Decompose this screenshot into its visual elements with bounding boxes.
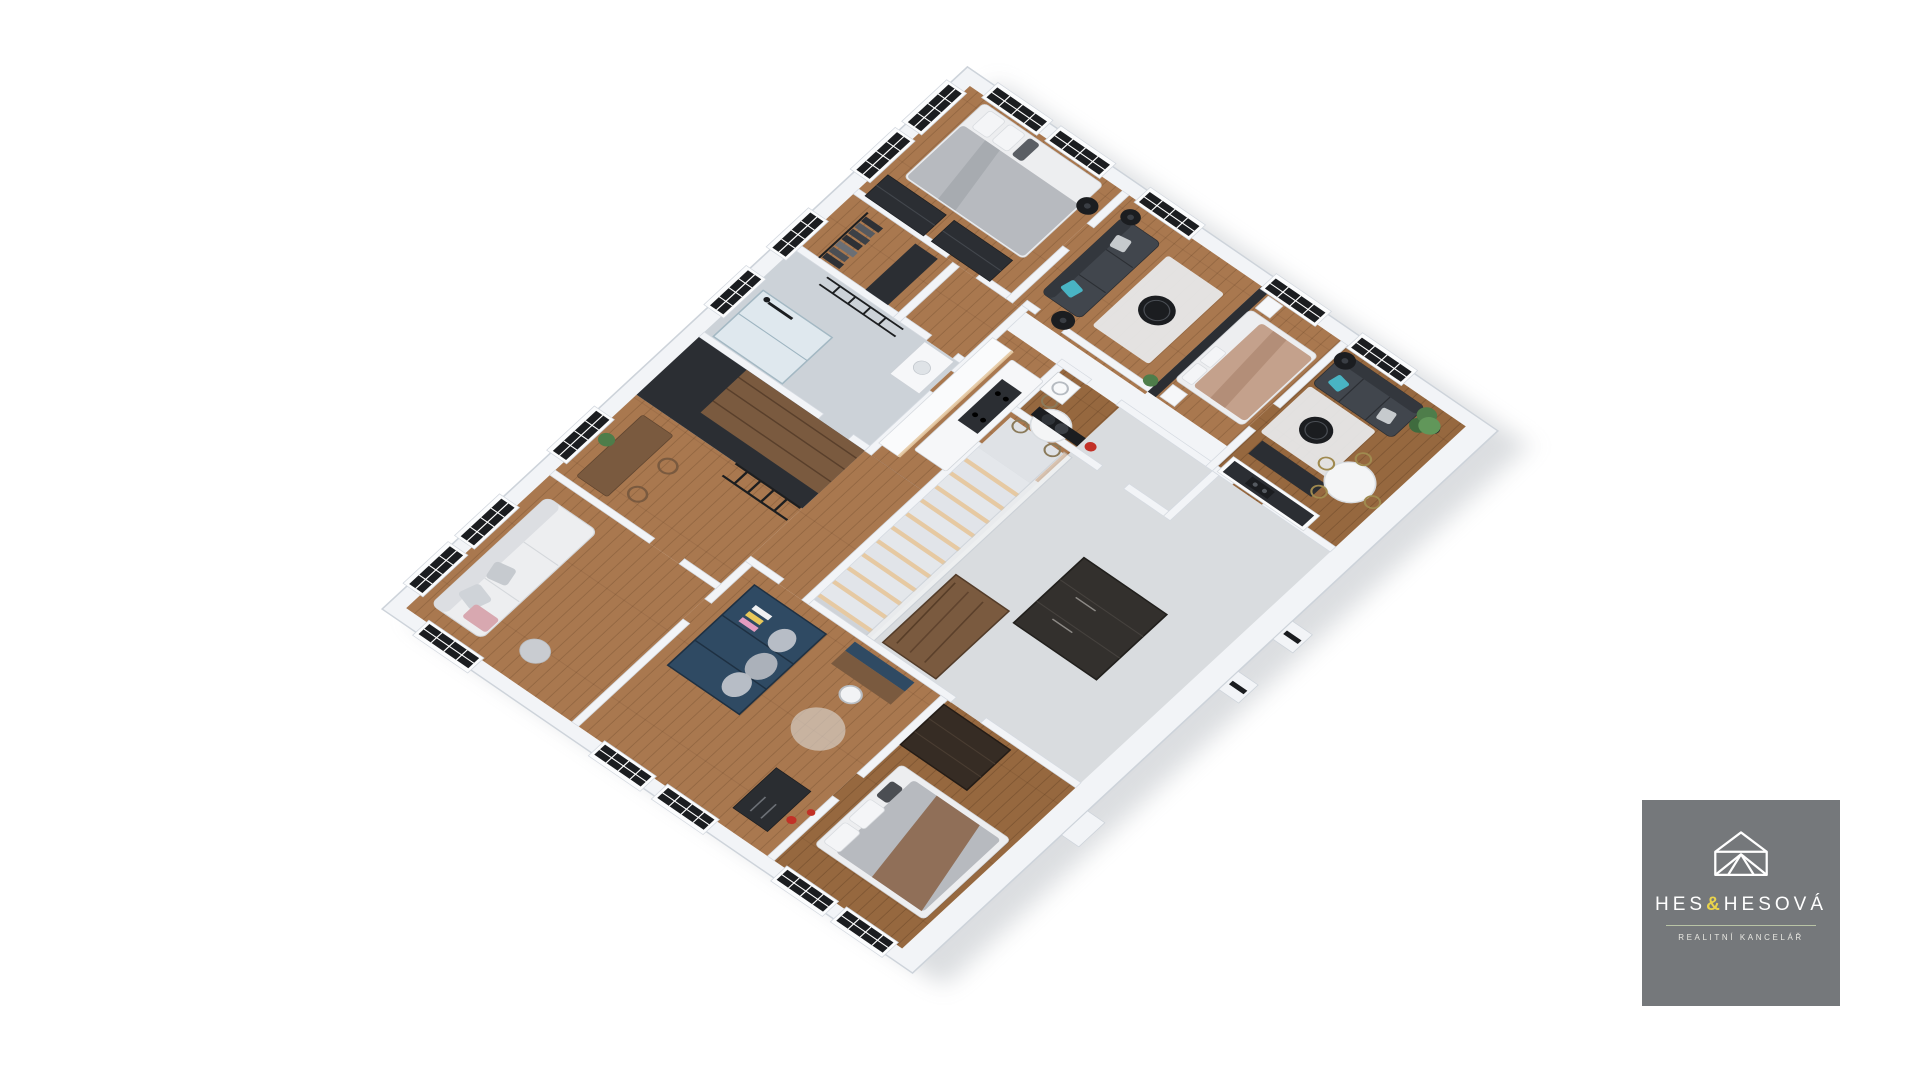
logo-name-right: HESOVÁ: [1724, 894, 1827, 915]
logo-title: HES&HESOVÁ: [1655, 894, 1827, 916]
logo-subtitle: REALITNÍ KANCELÁŘ: [1678, 933, 1804, 942]
logo-name-left: HES: [1655, 894, 1706, 915]
logo-ampersand: &: [1706, 894, 1724, 915]
floorplan-render: [0, 0, 1920, 1080]
page-canvas: HES&HESOVÁ REALITNÍ KANCELÁŘ: [0, 0, 1920, 1080]
house-icon: [1710, 826, 1772, 880]
agency-logo: HES&HESOVÁ REALITNÍ KANCELÁŘ: [1642, 800, 1840, 1006]
logo-divider: [1666, 925, 1816, 926]
